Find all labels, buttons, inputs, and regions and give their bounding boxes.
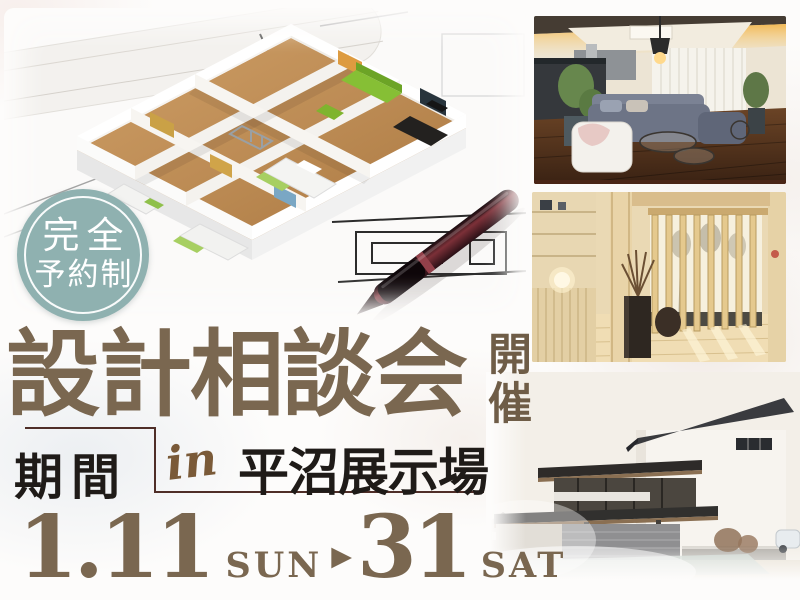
start-date: 1.11 — [18, 505, 211, 591]
schedule-row: 1.11 SUN ▶ 31 SAT — [18, 505, 566, 591]
event-banner: 完全 予約制 — [0, 0, 800, 600]
end-date: 31 — [357, 505, 469, 591]
living-room-photo — [534, 16, 786, 184]
divider-line-top — [25, 427, 156, 429]
reservation-badge: 完全 予約制 — [17, 189, 149, 321]
in-script-word: in — [163, 431, 220, 491]
event-title: 設計相談会 — [6, 328, 466, 422]
end-day: SAT — [481, 545, 567, 586]
badge-line1: 完全 — [43, 216, 131, 257]
round-lamp — [554, 272, 570, 288]
arrow-right-icon: ▶ — [331, 541, 352, 572]
divider-line-vertical — [154, 427, 156, 493]
entrance-photo — [532, 192, 786, 362]
badge-line2: 予約制 — [35, 257, 134, 294]
venue-name: 平沼展示場 — [238, 431, 488, 505]
white-armchair — [572, 122, 632, 172]
start-day: SUN — [225, 545, 322, 586]
event-held-label: 開催 — [483, 331, 527, 429]
entrance-illustration — [532, 192, 786, 362]
round-vase — [655, 307, 681, 337]
living-room-illustration — [534, 16, 786, 184]
